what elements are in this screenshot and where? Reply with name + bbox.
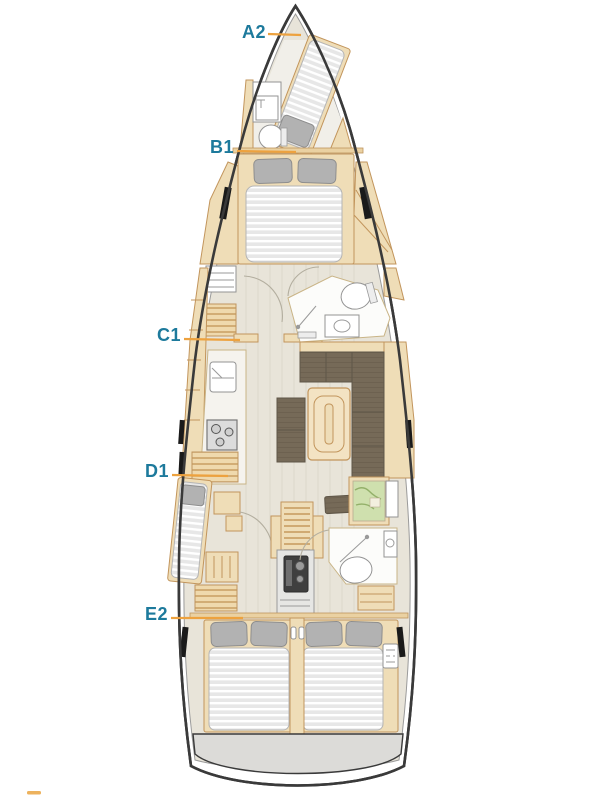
label-d1-text: D1 — [145, 461, 169, 481]
bow-toilet-tank — [281, 128, 287, 146]
bow-toilet-icon — [259, 125, 283, 149]
divider-handle — [291, 627, 296, 639]
leader-c1 — [184, 339, 240, 340]
pillow — [251, 621, 288, 646]
aft-shower-head — [365, 535, 369, 539]
engine-compartment — [277, 550, 314, 614]
label-e2-text: E2 — [145, 604, 168, 624]
pillow — [211, 621, 248, 646]
salon-table — [308, 388, 350, 460]
port-berth-pillow — [181, 485, 206, 506]
galley-locker-slats — [192, 452, 238, 482]
label-a2-text: A2 — [242, 22, 266, 42]
burner — [216, 438, 224, 446]
forward-double-bed — [238, 154, 354, 264]
aft-starboard-double-bed — [303, 620, 398, 732]
leader-d1 — [172, 475, 228, 476]
aft-head-cabinet — [358, 586, 394, 610]
nav-side-panel — [386, 481, 398, 517]
label-c1-text: C1 — [157, 325, 181, 345]
pillow — [298, 158, 337, 183]
aft-stbd-duvet — [303, 648, 383, 730]
fwd-bed-duvet — [246, 186, 342, 262]
leader-a2 — [268, 34, 301, 35]
aft-port-locker-slats — [195, 585, 237, 611]
pillow — [346, 621, 383, 646]
midship-sink — [325, 315, 359, 337]
galley-sink — [210, 362, 236, 392]
port-cabin-cabinet — [214, 492, 240, 514]
pillow — [306, 621, 343, 646]
pillow — [254, 158, 293, 183]
nav-seat — [325, 495, 352, 513]
burner — [225, 428, 233, 436]
forepeak-cabin — [233, 34, 363, 158]
sofa-back-top — [300, 342, 384, 352]
port-cabin-cabinet2 — [226, 516, 242, 531]
burner — [212, 425, 221, 434]
floorplan-drawing: A2 B1 C1 D1 E2 — [0, 0, 600, 800]
yacht-floorplan: A2 B1 C1 D1 E2 — [0, 0, 600, 800]
aft-stbd-locker — [383, 644, 398, 668]
divider-handle — [299, 627, 304, 639]
label-b1-text: B1 — [210, 137, 234, 157]
leader-b1 — [237, 151, 296, 152]
orange-artifact-mark — [27, 791, 41, 795]
midship-shower-controls — [298, 332, 316, 338]
aft-port-duvet — [209, 648, 289, 730]
midship-shower-drain — [296, 325, 300, 329]
aft-port-double-bed — [204, 620, 293, 732]
fwd-cabin-stbd-cabinet — [352, 162, 396, 264]
